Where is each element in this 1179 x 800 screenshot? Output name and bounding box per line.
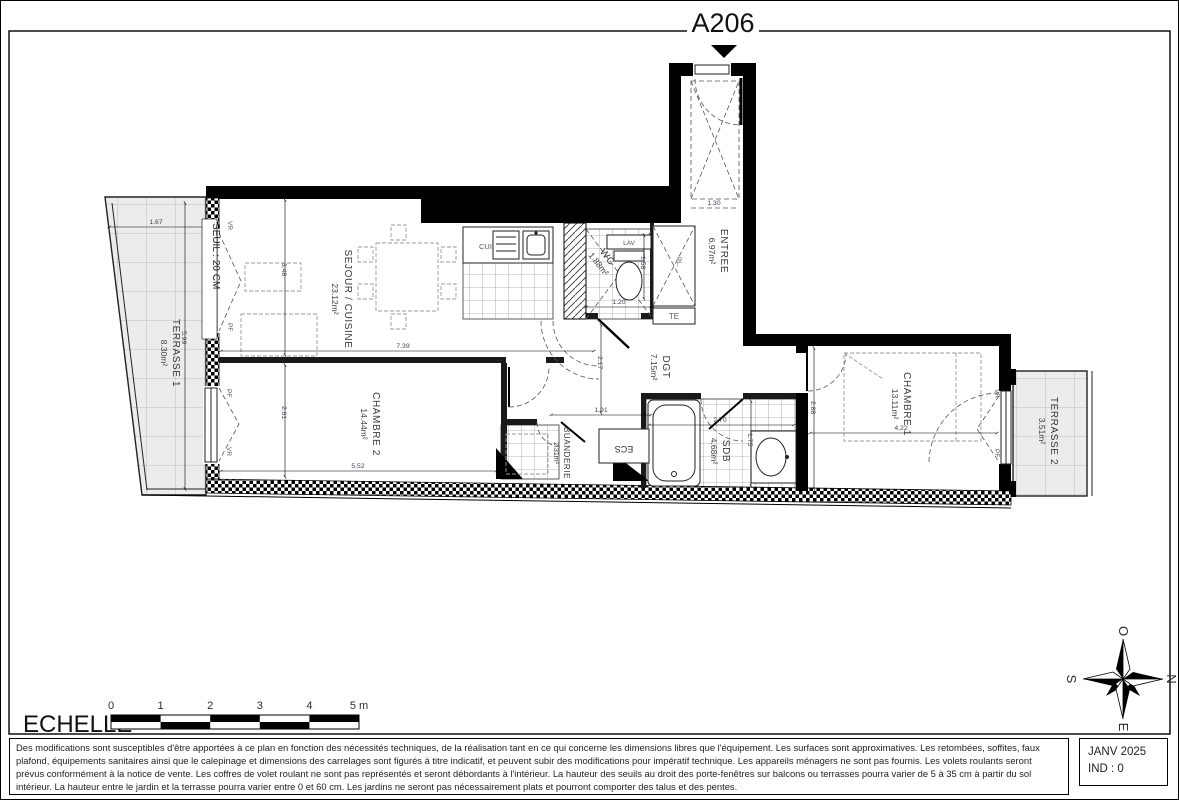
scale-tick: 1 — [158, 700, 164, 712]
sofa — [241, 314, 317, 356]
scale-bar: ECHELLE 0 1 2 3 4 5 m — [23, 700, 368, 738]
dim-sdb-w: 2.70 — [713, 417, 726, 424]
svg-text:8.30m²: 8.30m² — [159, 340, 169, 367]
kitchen-tiles — [463, 263, 553, 319]
room-label-dgt: DGT 7.15m² — [649, 354, 671, 381]
dim-sejour-h: 3.48 — [280, 263, 287, 276]
svg-text:2.31m²: 2.31m² — [552, 442, 559, 464]
svg-text:14.44m²: 14.44m² — [359, 408, 369, 439]
svg-text:ENTREE: ENTREE — [718, 229, 729, 273]
dim-sejour-w: 7.39 — [396, 343, 409, 350]
scale-tick: 2 — [207, 700, 213, 712]
svg-text:13.11m²: 13.11m² — [890, 389, 900, 420]
cui-label: CUI — [479, 242, 492, 251]
room-label-sejour: SEJOUR / CUISINE 23.12m² — [330, 249, 353, 348]
svg-text:7.15m²: 7.15m² — [649, 354, 659, 381]
compass-s: S — [1064, 675, 1079, 684]
footer-index: IND : 0 — [1088, 761, 1164, 778]
dining-table — [376, 243, 438, 311]
dim-wc-h: 1.58 — [639, 256, 646, 269]
svg-text:CHAMBRE 2: CHAMBRE 2 — [370, 392, 381, 456]
footer-disclaimer: Des modifications sont susceptibles d'êt… — [9, 738, 1069, 795]
scale-tick: 0 — [108, 700, 114, 712]
lav-label: LAV — [623, 240, 635, 247]
dim-chambre1-h: 2.88 — [809, 401, 816, 414]
vr-label: VR — [993, 389, 1000, 398]
floor-plan-svg: 7.39 3.48 2.61 1.67 5.99 5.52 2.17 1.91 … — [1, 1, 1178, 799]
dim-entree-w: 1.30 — [707, 200, 720, 207]
bathtub — [648, 400, 700, 486]
svg-text:SEJOUR / CUISINE: SEJOUR / CUISINE — [342, 249, 353, 348]
dim-dgt-h: 2.17 — [596, 356, 603, 369]
vr-label: VR — [225, 447, 232, 456]
compass-n: N — [1164, 674, 1178, 683]
room-label-entree: ENTREE 6.97m² — [707, 229, 729, 273]
svg-text:4.68m²: 4.68m² — [709, 438, 719, 465]
entry-zone — [691, 78, 741, 208]
scale-tick: 5 m — [350, 700, 368, 712]
svg-text:TERRASSE 1: TERRASSE 1 — [170, 319, 181, 387]
compass-o: O — [1116, 626, 1131, 636]
compass-icon: N E S O — [1064, 626, 1178, 732]
footer-date: JANV 2025 — [1088, 744, 1164, 761]
page-title: A206 — [691, 8, 754, 38]
svg-text:6.97m²: 6.97m² — [707, 238, 717, 265]
entrance-arrow-icon — [711, 45, 737, 58]
compass-e: E — [1116, 723, 1131, 732]
terrasse-1-shape — [105, 197, 206, 495]
kitchen-counter — [463, 227, 553, 263]
svg-text:3.51m²: 3.51m² — [1037, 418, 1047, 445]
scale-tick: 3 — [257, 700, 263, 712]
dim-chambre2-h: 2.61 — [280, 406, 287, 419]
footer-revision-box: JANV 2025 IND : 0 — [1079, 738, 1168, 786]
dim-dgt-w: 1.91 — [594, 407, 607, 414]
seuil-label: SEUIL : 20 CM — [210, 223, 221, 289]
svg-text:23.12m²: 23.12m² — [330, 283, 340, 314]
svg-text:DGT: DGT — [660, 356, 671, 379]
ecs-label: ECS — [615, 444, 634, 454]
toilet — [616, 262, 642, 300]
pf-label: PF — [225, 389, 232, 397]
svg-text:TERRASSE 2: TERRASSE 2 — [1048, 397, 1059, 465]
pf-label: PF — [993, 449, 1000, 457]
dim-sdb-h: 1.75 — [746, 433, 753, 446]
floor-plan-page: 7.39 3.48 2.61 1.67 5.99 5.52 2.17 1.91 … — [0, 0, 1179, 800]
svg-text:CHAMBRE 1: CHAMBRE 1 — [901, 372, 912, 436]
washbasin — [751, 431, 796, 483]
te-label: TE — [669, 312, 679, 321]
coffee-table — [245, 263, 301, 291]
pl-closet — [653, 226, 695, 324]
dim-terrasse1-w: 1.67 — [149, 219, 162, 226]
vr-label: VR — [226, 221, 233, 230]
svg-text:SDB: SDB — [720, 440, 731, 462]
pl-label: PL. — [675, 257, 682, 267]
room-label-chambre2: CHAMBRE 2 14.44m² — [359, 392, 381, 456]
scale-tick: 4 — [306, 700, 312, 712]
pf-label: PF — [226, 323, 233, 331]
svg-text:BUANDERIE: BUANDERIE — [562, 427, 571, 479]
dim-chambre2-w: 5.52 — [351, 463, 364, 470]
dim-wc-w: 1.20 — [612, 299, 625, 306]
